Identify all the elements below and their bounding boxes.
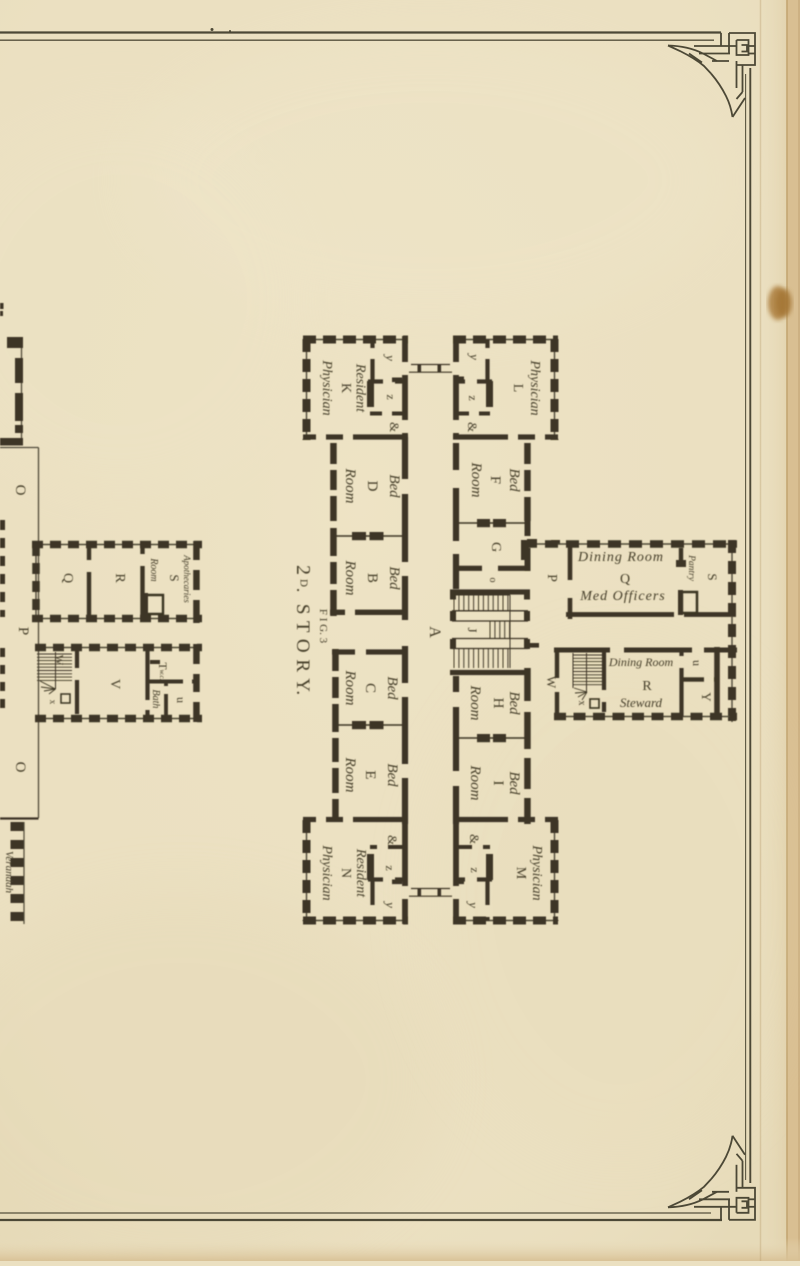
svg-text:Apothecaries: Apothecaries	[182, 554, 192, 603]
svg-text:Steward: Steward	[620, 695, 663, 710]
svg-text:E: E	[362, 770, 378, 779]
svg-text:Bed: Bed	[506, 468, 522, 492]
svg-text:&: &	[385, 835, 400, 845]
svg-text:G: G	[488, 542, 503, 552]
svg-text:Room: Room	[342, 468, 358, 504]
svg-text:D: D	[298, 579, 310, 587]
svg-text:S T O R Y.: S T O R Y.	[292, 604, 313, 696]
svg-text:Bed: Bed	[384, 676, 400, 700]
svg-text:Room: Room	[468, 462, 484, 498]
svg-text:Physician: Physician	[319, 844, 334, 900]
svg-text:w.c.: w.c.	[158, 670, 166, 681]
svg-text:x: x	[576, 701, 587, 706]
svg-text:W: W	[53, 655, 65, 666]
svg-text:o: o	[487, 578, 498, 583]
svg-text:Dining Room: Dining Room	[577, 550, 664, 565]
svg-text:K: K	[338, 383, 353, 393]
svg-text:A: A	[426, 626, 443, 638]
svg-text:Room: Room	[342, 560, 358, 596]
svg-text:Room: Room	[342, 670, 358, 706]
svg-text:Physician: Physician	[529, 844, 544, 900]
svg-text:.: .	[293, 588, 313, 593]
svg-text:L: L	[510, 384, 525, 393]
svg-text:Q: Q	[620, 572, 630, 587]
svg-text:Bed: Bed	[386, 566, 402, 590]
svg-text:Room: Room	[342, 757, 358, 793]
svg-text:Room: Room	[467, 685, 483, 721]
svg-text:y: y	[466, 900, 481, 908]
svg-text:F I G. 3: F I G. 3	[317, 609, 329, 644]
svg-text:y: y	[467, 352, 482, 360]
svg-text:O: O	[12, 762, 28, 773]
svg-text:Q: Q	[60, 573, 75, 583]
svg-text:y: y	[383, 900, 398, 908]
svg-text:Resident: Resident	[353, 363, 368, 413]
svg-text:F: F	[487, 476, 503, 484]
svg-text:z: z	[384, 394, 398, 399]
svg-text:y: y	[383, 353, 398, 361]
svg-text:Bed: Bed	[384, 763, 400, 787]
svg-text:2: 2	[292, 565, 314, 575]
svg-text:Med Officers: Med Officers	[579, 589, 665, 604]
svg-text:Bath: Bath	[150, 690, 161, 709]
svg-text:R: R	[642, 679, 652, 694]
svg-text:N: N	[338, 868, 353, 878]
svg-text:Resident: Resident	[353, 848, 368, 898]
svg-text:Bed: Bed	[506, 771, 522, 795]
svg-text:z: z	[383, 865, 397, 870]
svg-text:M: M	[513, 867, 528, 880]
svg-text:R: R	[112, 573, 127, 583]
svg-text:x: x	[48, 700, 58, 705]
svg-text:O: O	[12, 485, 28, 496]
svg-text:u: u	[174, 697, 188, 703]
svg-text:Pantry: Pantry	[686, 554, 696, 582]
svg-text:Room: Room	[467, 765, 483, 801]
svg-text:Verandah: Verandah	[3, 851, 15, 894]
svg-text:C: C	[362, 683, 378, 693]
svg-text:V: V	[107, 679, 122, 689]
svg-text:Bed: Bed	[506, 691, 522, 715]
svg-text:J: J	[465, 627, 480, 632]
svg-text:B: B	[364, 573, 380, 583]
svg-text:Physician: Physician	[527, 359, 542, 415]
svg-text:Y: Y	[699, 692, 714, 702]
svg-text:D: D	[364, 481, 380, 492]
svg-text:&: &	[465, 422, 480, 432]
svg-text:z: z	[468, 867, 482, 872]
svg-text:Physician: Physician	[319, 359, 334, 415]
svg-text:H: H	[490, 698, 506, 709]
svg-text:Dining Room: Dining Room	[608, 655, 674, 669]
svg-text:&: &	[387, 422, 402, 432]
svg-text:&: &	[467, 834, 482, 844]
svg-text:z: z	[466, 395, 480, 400]
svg-text:Room: Room	[148, 557, 159, 581]
svg-text:Bed: Bed	[386, 474, 402, 498]
svg-text:S: S	[705, 573, 720, 580]
svg-text:P: P	[544, 574, 559, 582]
svg-text:S: S	[167, 574, 182, 581]
svg-text:P: P	[15, 627, 31, 635]
svg-text:u: u	[690, 660, 704, 666]
svg-text:I: I	[490, 781, 506, 786]
